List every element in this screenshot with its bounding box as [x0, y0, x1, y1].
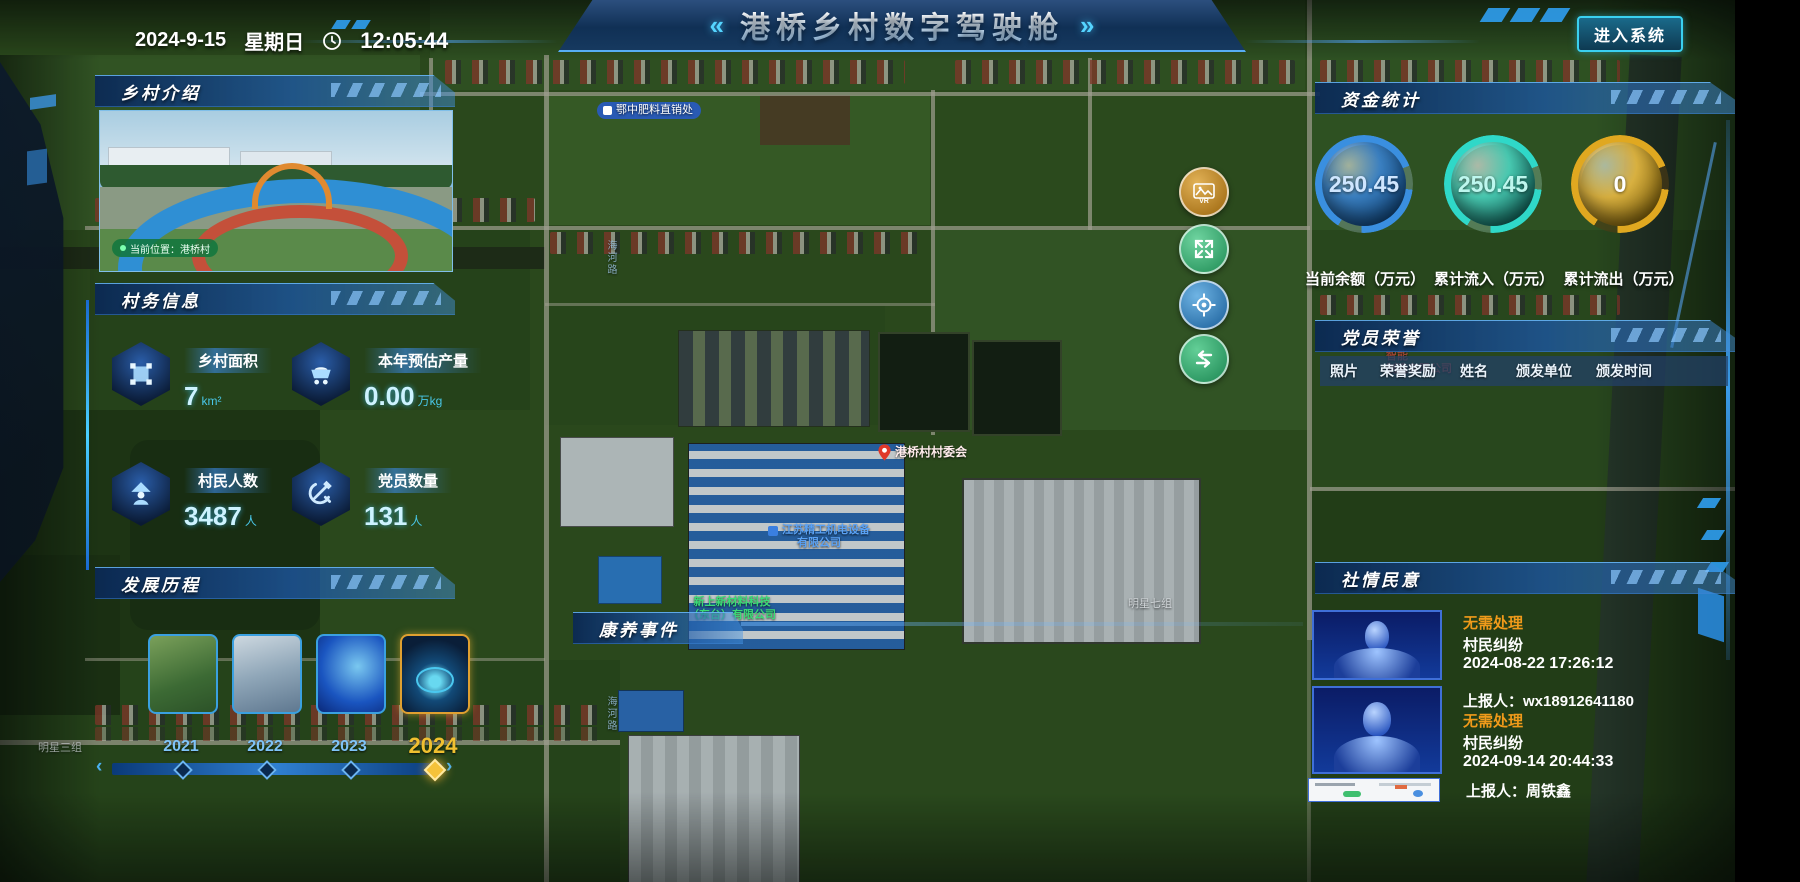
gauge-total-inflow: 250.45: [1444, 135, 1542, 233]
gauge-value: 0: [1614, 171, 1627, 198]
switch-view-button[interactable]: [1179, 334, 1229, 384]
company1-line1: 江苏精工机电设备: [782, 524, 870, 537]
sentiment-item-thumbnail[interactable]: [1308, 778, 1440, 802]
panel-header-party-honor: 党员荣誉: [1315, 320, 1735, 352]
map-road: [420, 92, 1320, 96]
honor-col-date: 颁发时间: [1596, 361, 1652, 381]
map-road: [545, 303, 935, 306]
stat-unit: km²: [201, 394, 221, 408]
timeline-slider[interactable]: [112, 763, 442, 775]
village-photo: 当前位置：港桥村: [99, 110, 453, 272]
map-road: [544, 55, 549, 882]
map-group7-label: 明星七组: [1128, 598, 1172, 611]
panel-title: 资金统计: [1315, 86, 1421, 111]
honor-table-header: 照片 荣誉奖励 姓名 颁发单位 颁发时间: [1320, 356, 1728, 386]
title-bar: « 港桥乡村数字驾驶舱 »: [558, 0, 1246, 52]
svg-text:VR: VR: [1199, 198, 1209, 205]
timeline-right-arrow[interactable]: ›: [446, 756, 452, 778]
development-thumb-2023[interactable]: [316, 634, 386, 714]
sentiment-reporter: 上报人：周铁鑫: [1466, 780, 1571, 801]
committee-text: 港桥村村委会: [895, 446, 967, 459]
stat-party-member-count: 党员数量 131人: [292, 462, 452, 532]
stat-value: 0.00: [364, 381, 415, 411]
stat-label: 本年预估产量: [364, 348, 482, 373]
map-road: [1307, 0, 1312, 640]
expand-icon: [1192, 237, 1216, 261]
thumbnail-line: [1315, 783, 1355, 786]
pin-icon: [120, 245, 126, 251]
thumbnail-dot: [1343, 791, 1361, 797]
header-stripes-decor: [1611, 328, 1721, 342]
enter-system-button[interactable]: 进入系统: [1577, 16, 1683, 52]
panel-title: 社情民意: [1315, 566, 1421, 591]
map-warehouse: [962, 478, 1201, 644]
red-pin-icon: [878, 444, 891, 461]
screen-black-strip: [1735, 0, 1800, 882]
map-small-factory: [560, 437, 674, 527]
panel-title: 村务信息: [95, 287, 201, 312]
gauge-sphere: 250.45: [1322, 142, 1406, 226]
photo-caption: 当前位置：港桥村: [130, 241, 210, 256]
stat-value: 131: [364, 501, 407, 531]
company2-line1: 新上新材料科技: [688, 596, 776, 609]
map-houses: [955, 60, 1295, 84]
panel-header-sentiment: 社情民意: [1315, 562, 1735, 594]
map-pond: [972, 340, 1062, 436]
sentiment-item-avatar[interactable]: [1312, 610, 1442, 680]
vr-panorama-button[interactable]: VR: [1179, 167, 1229, 217]
page-title: 港桥乡村数字驾驶舱: [740, 3, 1064, 47]
thumbnail-dot: [1413, 790, 1423, 797]
honor-col-photo: 照片: [1320, 361, 1380, 381]
stat-value: 7: [184, 381, 198, 411]
map-committee-label[interactable]: 港桥村村委会: [878, 444, 967, 461]
right-chevron-icon: »: [1080, 10, 1094, 41]
gauge-label-outflow: 累计流出（万元）: [1556, 268, 1691, 289]
gauge-value: 250.45: [1458, 171, 1528, 198]
company1-line2: 有限公司: [768, 537, 870, 550]
panel-title: 党员荣誉: [1315, 324, 1421, 349]
map-field: [935, 95, 1305, 225]
datetime-bar: 2024-9-15 星期日 12:05:44: [135, 26, 448, 55]
map-road: [1307, 640, 1311, 882]
panel-header-development: 发展历程: [95, 567, 455, 599]
panel-header-village-affairs: 村务信息: [95, 283, 455, 315]
map-big-roofs: [628, 735, 800, 882]
stat-unit: 万kg: [418, 394, 443, 408]
gauge-label-inflow: 累计流入（万元）: [1429, 268, 1559, 289]
stat-unit: 人: [245, 514, 257, 528]
header-stripes-decor: [331, 291, 441, 305]
year-2023[interactable]: 2023: [316, 738, 382, 756]
map-field: [760, 95, 850, 145]
company-icon: [768, 526, 778, 536]
gauge-label-balance: 当前余额（万元）: [1300, 268, 1430, 289]
panel-header-village-intro: 乡村介绍: [95, 75, 455, 107]
health-panel-line: [741, 622, 1303, 626]
panel-title: 乡村介绍: [95, 79, 201, 104]
map-residential-estate: [678, 330, 870, 427]
map-road-label: 海河路: [604, 696, 617, 732]
stat-estimated-output: 本年预估产量 0.00万kg: [292, 342, 482, 412]
stat-village-area: 乡村面积 7km²: [112, 342, 272, 412]
timeline-left-arrow[interactable]: ‹: [96, 756, 102, 778]
stat-value: 3487: [184, 501, 242, 531]
left-chevron-icon: «: [710, 10, 724, 41]
header-stripes-decor: [1611, 90, 1721, 104]
avatar-head: [1365, 621, 1389, 651]
header-stripes-decor: [331, 83, 441, 97]
gauge-current-balance: 250.45: [1315, 135, 1413, 233]
honor-col-name: 姓名: [1460, 361, 1516, 381]
fullscreen-button[interactable]: [1179, 224, 1229, 274]
sentiment-time: 2024-09-14 20:44:33: [1463, 753, 1613, 771]
gauge-sphere: 250.45: [1451, 142, 1535, 226]
vr-image-icon: VR: [1191, 179, 1217, 205]
map-road: [1310, 487, 1735, 491]
villager-icon: [112, 462, 170, 526]
stat-label: 乡村面积: [184, 348, 272, 373]
map-poi-fertilizer[interactable]: 鄂中肥料直销处: [597, 102, 701, 119]
date-text: 2024-9-15: [135, 29, 226, 52]
thumbnail-dot: [1395, 785, 1407, 789]
weekday-text: 星期日: [244, 26, 304, 55]
gauge-total-outflow: 0: [1571, 135, 1669, 233]
year-2024[interactable]: 2024: [400, 733, 466, 759]
map-houses: [1320, 295, 1620, 315]
time-text: 12:05:44: [360, 28, 448, 54]
honor-col-award: 荣誉奖励: [1380, 361, 1460, 381]
sentiment-reporter: 上报人：wx18912641180: [1463, 690, 1634, 711]
control-room-ring: [416, 667, 454, 693]
party-emblem-icon: [292, 462, 350, 526]
gauge-value: 250.45: [1329, 171, 1399, 198]
panel-title: 康养事件: [573, 616, 679, 641]
panel-header-health-events: 康养事件: [573, 612, 743, 644]
area-icon: [112, 342, 170, 406]
stat-label: 党员数量: [364, 468, 452, 493]
locate-button[interactable]: [1179, 280, 1229, 330]
sentiment-time: 2024-08-22 17:26:12: [1463, 655, 1613, 673]
map-road-label: 海河路: [604, 240, 617, 276]
honor-col-issuer: 颁发单位: [1516, 361, 1596, 381]
header-stripes-decor: [331, 575, 441, 589]
development-thumb-2021[interactable]: [148, 634, 218, 714]
map-company1-label: 江苏精工机电设备 有限公司: [768, 524, 870, 550]
year-2021[interactable]: 2021: [148, 738, 214, 756]
poi-label: 鄂中肥料直销处: [616, 104, 693, 117]
sentiment-type: 村民纠纷: [1463, 732, 1523, 753]
cart-icon: [292, 342, 350, 406]
avatar-body: [1334, 736, 1420, 774]
stat-villager-count: 村民人数 3487人: [112, 462, 272, 532]
map-houses: [1320, 60, 1620, 82]
target-icon: [1191, 292, 1217, 318]
development-thumb-2024[interactable]: [400, 634, 470, 714]
panel-title: 发展历程: [95, 571, 201, 596]
map-pond: [878, 332, 970, 432]
sentiment-type: 村民纠纷: [1463, 634, 1523, 655]
sentiment-status: 无需处理: [1463, 612, 1523, 633]
stat-unit: 人: [410, 514, 422, 528]
swap-arrows-icon: [1192, 347, 1216, 371]
map-houses: [445, 60, 905, 84]
map-blue-roof-building: [618, 690, 684, 732]
poi-icon: [603, 106, 612, 115]
header-line-right: [1245, 40, 1480, 43]
map-group3-label: 明星三组: [38, 742, 82, 755]
clock-icon: [322, 31, 342, 51]
sentiment-item-avatar[interactable]: [1312, 686, 1442, 774]
sentiment-status: 无需处理: [1463, 710, 1523, 731]
development-thumb-2022[interactable]: [232, 634, 302, 714]
dashboard-screen: 鄂中肥料直销处 港桥村村委会 江苏精工机电设备 有限公司 新上新材料科技 （东台…: [0, 0, 1800, 882]
photo-caption-badge: 当前位置：港桥村: [112, 239, 218, 257]
panel-header-funds: 资金统计: [1315, 82, 1735, 114]
header-stripes-decor: [1611, 570, 1721, 584]
avatar-body: [1334, 648, 1420, 680]
stat-label: 村民人数: [184, 468, 272, 493]
year-2022[interactable]: 2022: [232, 738, 298, 756]
avatar-head: [1363, 702, 1391, 736]
gauge-sphere: 0: [1578, 142, 1662, 226]
map-blue-pool: [598, 556, 662, 604]
